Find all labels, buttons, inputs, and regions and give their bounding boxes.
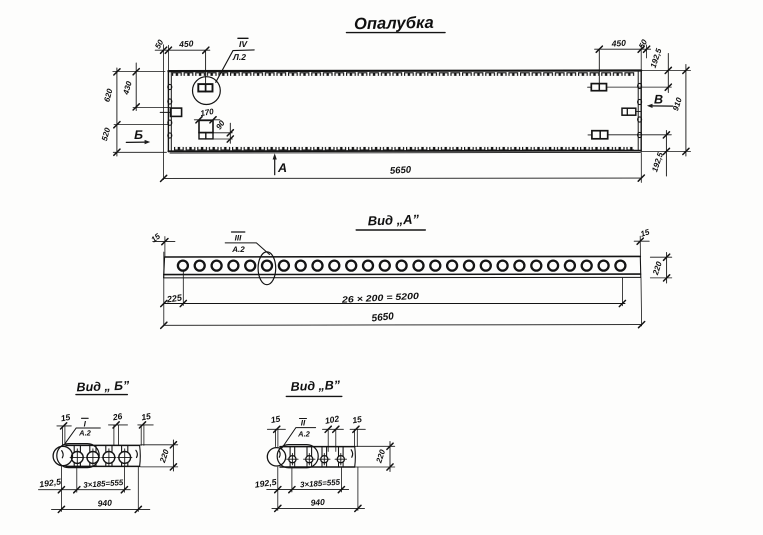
svg-text:15: 15 <box>351 414 362 426</box>
svg-text:III: III <box>235 233 242 242</box>
svg-text:А: А <box>277 161 287 175</box>
svg-text:26: 26 <box>111 411 123 423</box>
svg-text:940: 940 <box>310 497 325 508</box>
svg-text:Опалубка: Опалубка <box>354 14 434 33</box>
svg-text:Вид „А”: Вид „А” <box>367 212 419 229</box>
svg-text:15: 15 <box>270 413 281 425</box>
svg-text:А.2: А.2 <box>78 428 92 437</box>
svg-text:450: 450 <box>178 38 194 49</box>
svg-text:5650: 5650 <box>371 311 395 324</box>
svg-text:Л.2: Л.2 <box>232 52 246 62</box>
svg-text:5650: 5650 <box>390 164 413 176</box>
svg-text:IV: IV <box>239 39 248 49</box>
svg-text:Б: Б <box>134 128 143 142</box>
svg-text:II: II <box>301 419 306 428</box>
svg-text:450: 450 <box>610 38 626 49</box>
svg-text:В: В <box>654 93 663 107</box>
svg-text:940: 940 <box>97 498 112 509</box>
svg-text:15: 15 <box>60 412 71 424</box>
svg-text:А.2: А.2 <box>297 430 311 439</box>
svg-text:Вид „В”: Вид „В” <box>290 378 341 394</box>
svg-text:Вид „ Б”: Вид „ Б” <box>76 379 130 395</box>
svg-text:А.2: А.2 <box>231 245 245 254</box>
svg-text:15: 15 <box>140 411 151 423</box>
